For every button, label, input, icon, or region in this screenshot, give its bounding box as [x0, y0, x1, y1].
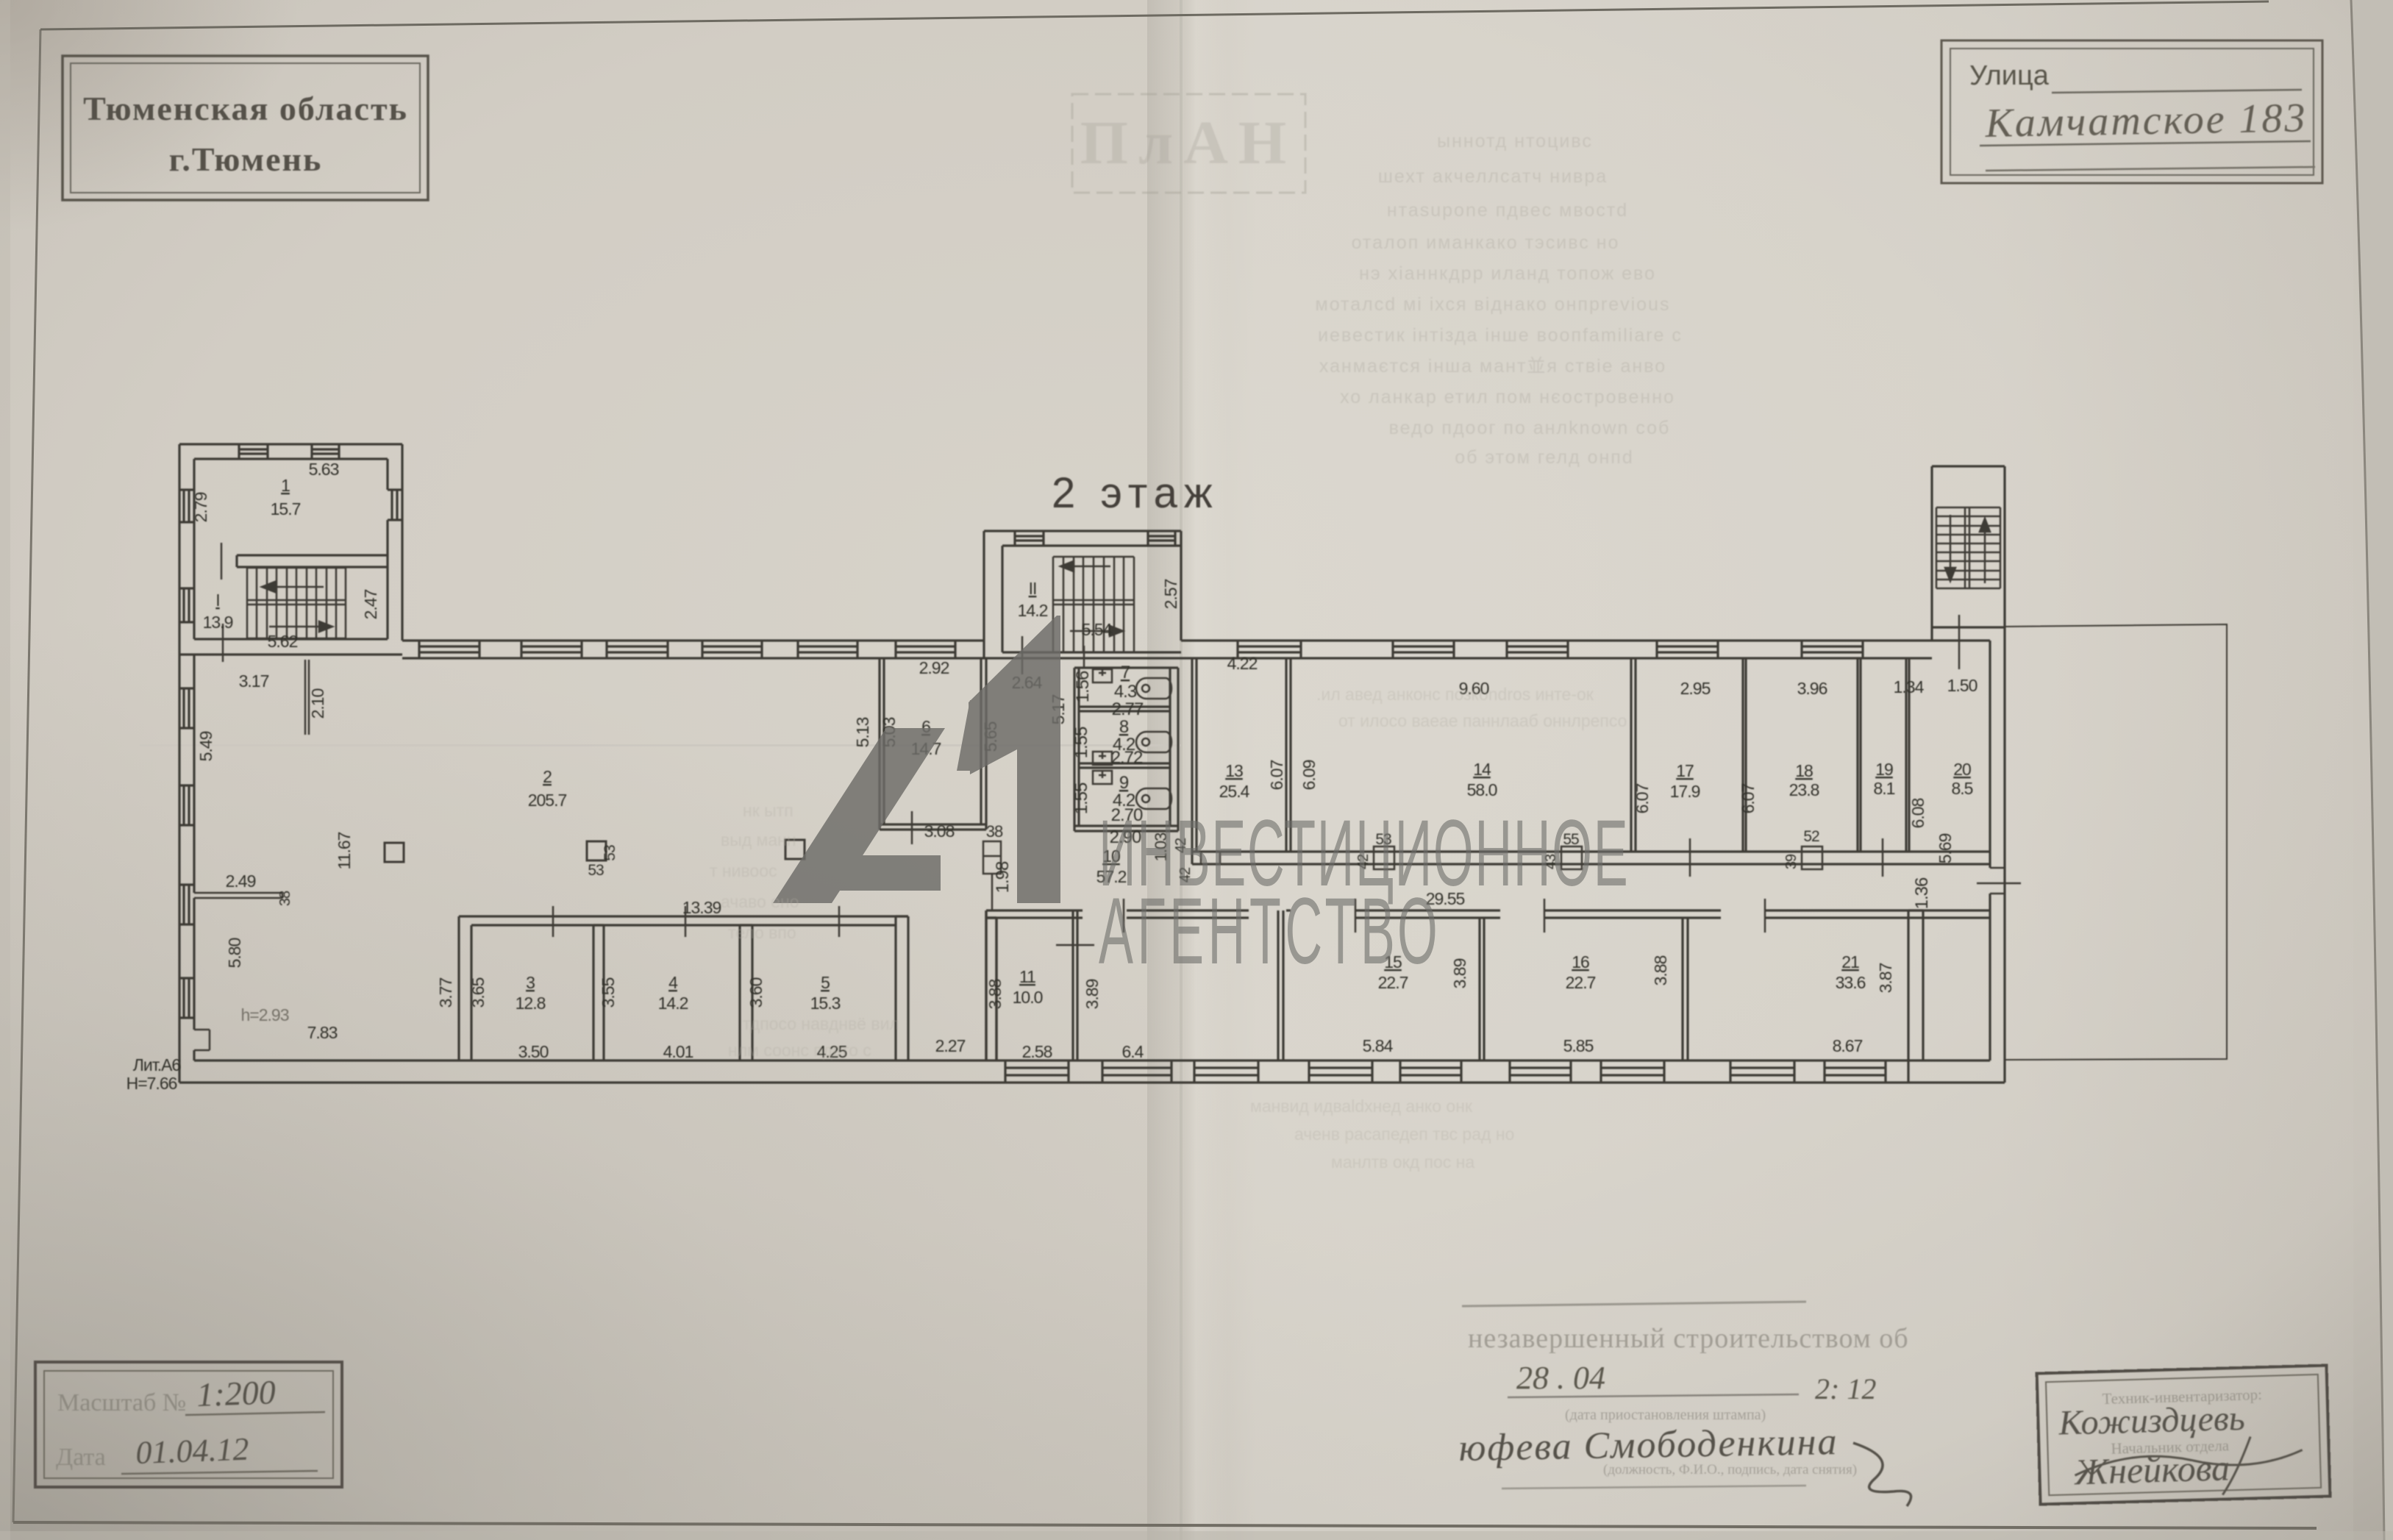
svg-text:хо ланкар етил пом нєостровенн: хо ланкар етил пом нєостровенно — [1340, 387, 1675, 407]
svg-text:1: 1 — [281, 476, 290, 495]
svg-text:1.36: 1.36 — [1912, 877, 1932, 909]
svg-text:53: 53 — [602, 845, 618, 861]
svg-text:53: 53 — [588, 862, 604, 879]
svg-text:11.67: 11.67 — [335, 832, 354, 869]
svg-text:нтаsupone пдвес мвостd: нтаsupone пдвес мвостd — [1387, 200, 1628, 221]
svg-text:5: 5 — [821, 973, 830, 992]
svg-text:Тюменская область: Тюменская область — [83, 90, 408, 127]
svg-text:3.89: 3.89 — [1450, 958, 1469, 988]
svg-text:14.2: 14.2 — [658, 994, 688, 1013]
svg-text:4.22: 4.22 — [1227, 654, 1258, 673]
svg-text:2.57: 2.57 — [1161, 579, 1180, 609]
svg-text:2.47: 2.47 — [361, 589, 380, 619]
svg-text:6.09: 6.09 — [1299, 760, 1319, 790]
svg-text:18: 18 — [1795, 761, 1813, 780]
svg-text:23.8: 23.8 — [1789, 780, 1819, 799]
svg-text:6.07: 6.07 — [1267, 760, 1286, 790]
svg-text:2.10: 2.10 — [308, 688, 327, 719]
svg-text:1.34: 1.34 — [1894, 677, 1925, 696]
svg-text:4: 4 — [668, 973, 678, 992]
svg-text:1.56: 1.56 — [1073, 671, 1093, 702]
svg-text:2.27: 2.27 — [935, 1036, 966, 1055]
svg-text:15.7: 15.7 — [271, 499, 301, 518]
svg-text:14.2: 14.2 — [1018, 601, 1048, 620]
svg-text:2.95: 2.95 — [1680, 679, 1711, 698]
svg-text:16: 16 — [1572, 952, 1589, 972]
svg-text:2.79: 2.79 — [191, 492, 210, 522]
svg-text:5.85: 5.85 — [1563, 1036, 1594, 1055]
svg-text:незавершенный строительством о: незавершенный строительством об — [1468, 1323, 1909, 1354]
svg-text:1.55: 1.55 — [1071, 783, 1091, 814]
svg-text:1.98: 1.98 — [993, 861, 1013, 893]
svg-text:1.55: 1.55 — [1071, 727, 1091, 758]
svg-text:Дата: Дата — [56, 1444, 106, 1471]
svg-text:11: 11 — [1019, 967, 1035, 986]
svg-text:II: II — [1029, 579, 1037, 598]
svg-text:58.0: 58.0 — [1467, 780, 1497, 799]
svg-text:3.88: 3.88 — [985, 979, 1005, 1009]
svg-text:38: 38 — [277, 891, 293, 906]
svg-text:8: 8 — [1119, 717, 1129, 737]
svg-text:12.8: 12.8 — [516, 994, 546, 1013]
svg-text:2.77: 2.77 — [1112, 699, 1144, 719]
svg-text:Н=7.66: Н=7.66 — [126, 1074, 177, 1093]
svg-text:ыннотд нтоцивс: ыннотд нтоцивс — [1437, 131, 1593, 151]
svg-text:28 . 04: 28 . 04 — [1516, 1360, 1605, 1396]
svg-text:21: 21 — [1841, 952, 1859, 972]
svg-text:аченв расапедеп твс рад но: аченв расапедеп твс рад но — [1294, 1124, 1514, 1144]
svg-text:3.65: 3.65 — [468, 977, 488, 1008]
svg-text:3.08: 3.08 — [924, 821, 955, 841]
svg-text:7: 7 — [1121, 663, 1130, 682]
svg-text:22.7: 22.7 — [1566, 973, 1596, 992]
svg-text:13.39: 13.39 — [682, 898, 721, 917]
svg-text:1.50: 1.50 — [1947, 676, 1977, 695]
svg-text:5.84: 5.84 — [1363, 1036, 1394, 1055]
svg-text:14: 14 — [1473, 760, 1491, 779]
svg-text:8.5: 8.5 — [1952, 779, 1973, 798]
svg-text:иевестик інтізда інше воопfami: иевестик інтізда інше воопfamiliare с — [1318, 325, 1683, 346]
svg-text:2 этаж: 2 этаж — [1052, 469, 1219, 517]
svg-text:манлтв окд пос на: манлтв окд пос на — [1331, 1152, 1474, 1172]
svg-text:Лит.А6: Лит.А6 — [133, 1055, 181, 1074]
svg-text:(должность, Ф.И.О., подпись, д: (должность, Ф.И.О., подпись, дата снятия… — [1603, 1462, 1857, 1477]
svg-text:20: 20 — [1953, 760, 1971, 779]
svg-text:4.01: 4.01 — [663, 1042, 693, 1061]
svg-text:.ил авед анконс позкоndros инт: .ил авед анконс позкоndros инте-ок — [1316, 685, 1594, 704]
svg-text:7.83: 7.83 — [307, 1023, 338, 1042]
svg-text:19: 19 — [1875, 760, 1893, 779]
svg-text:3.17: 3.17 — [239, 671, 269, 691]
svg-text:6.07: 6.07 — [1633, 783, 1652, 813]
svg-text:2.92: 2.92 — [919, 658, 949, 677]
svg-text:8.67: 8.67 — [1833, 1036, 1863, 1055]
svg-text:тдпосо навднвё вил: тдпосо навднвё вил — [743, 1014, 899, 1033]
svg-text:3.89: 3.89 — [1083, 979, 1102, 1009]
svg-text:5.63: 5.63 — [309, 460, 339, 479]
svg-text:т нивоос: т нивоос — [710, 861, 777, 880]
svg-text:8.1: 8.1 — [1874, 779, 1895, 798]
svg-text:3.60: 3.60 — [746, 977, 766, 1008]
svg-text:(дата приостановления штампа): (дата приостановления штампа) — [1565, 1407, 1766, 1423]
svg-text:об этом гелд онпd: об этом гелд онпd — [1455, 447, 1634, 468]
svg-text:6.4: 6.4 — [1122, 1042, 1144, 1061]
svg-text:ведо пдоог по анлknown соб: ведо пдоог по анлknown соб — [1389, 418, 1671, 438]
svg-text:5.69: 5.69 — [1936, 833, 1955, 863]
svg-text:оталоп иманкако тэсивс но: оталоп иманкако тэсивс но — [1352, 232, 1620, 253]
svg-text:г.Тюмень: г.Тюмень — [169, 140, 323, 178]
svg-text:ачаво ено: ачаво ено — [721, 892, 799, 911]
svg-text:13.9: 13.9 — [203, 613, 233, 632]
svg-text:шехт акчеллсатч нивра: шехт акчеллсатч нивра — [1378, 166, 1608, 187]
svg-text:10.0: 10.0 — [1013, 988, 1043, 1007]
svg-text:3.50: 3.50 — [518, 1042, 549, 1061]
svg-text:5.54: 5.54 — [1082, 620, 1113, 639]
svg-text:нлм соонс пдвто с: нлм соонс пдвто с — [728, 1041, 871, 1060]
svg-text:выд манн: выд манн — [721, 830, 796, 849]
svg-text:от илосо ваеае паннлааб оннлре: от илосо ваеае паннлааб оннлрепсо — [1338, 711, 1627, 730]
svg-text:ханмаєтся інша мант並я ствіе ан: ханмаєтся інша мант並я ствіе анво — [1319, 356, 1666, 377]
svg-text:Камчатское 183: Камчатское 183 — [1984, 95, 2308, 146]
svg-text:25.4: 25.4 — [1219, 782, 1250, 801]
svg-text:Жнейкова: Жнейкова — [2073, 1447, 2230, 1492]
svg-text:17.9: 17.9 — [1670, 782, 1700, 801]
svg-text:33.6: 33.6 — [1836, 973, 1866, 992]
svg-text:I: I — [215, 591, 219, 610]
svg-text:3: 3 — [526, 973, 535, 992]
svg-text:5.13: 5.13 — [853, 717, 872, 747]
svg-text:3.96: 3.96 — [1797, 679, 1827, 698]
svg-text:3.87: 3.87 — [1876, 963, 1895, 993]
svg-text:01.04.12: 01.04.12 — [135, 1431, 250, 1471]
svg-text:Кожиздцевь: Кожиздцевь — [2058, 1399, 2245, 1443]
svg-text:6.08: 6.08 — [1908, 798, 1927, 828]
svg-text:3.77: 3.77 — [436, 977, 455, 1008]
svg-text:тело впо: тело впо — [728, 923, 796, 942]
svg-text:h=2.93: h=2.93 — [241, 1005, 289, 1024]
svg-text:моталсd мі іхся віднако онпpre: моталсd мі іхся віднако онпprevious — [1316, 294, 1671, 315]
svg-text:13: 13 — [1225, 761, 1243, 780]
svg-text:5.49: 5.49 — [196, 731, 215, 761]
svg-text:38: 38 — [986, 822, 1003, 841]
svg-text:1:200: 1:200 — [196, 1373, 277, 1414]
svg-text:2: 2 — [543, 767, 552, 786]
svg-text:52: 52 — [1803, 828, 1819, 845]
svg-text:Улица: Улица — [1969, 60, 2050, 91]
svg-text:3.55: 3.55 — [599, 977, 618, 1008]
svg-text:39: 39 — [1783, 854, 1800, 869]
svg-text:205.7: 205.7 — [528, 791, 567, 810]
svg-text:9: 9 — [1119, 773, 1129, 793]
svg-text:2.58: 2.58 — [1022, 1042, 1052, 1061]
svg-text:5.80: 5.80 — [225, 938, 244, 968]
svg-text:Масштаб №: Масштаб № — [57, 1389, 186, 1416]
svg-text:2.72: 2.72 — [1111, 748, 1143, 768]
svg-text:4.3: 4.3 — [1114, 682, 1137, 702]
svg-text:2: 12: 2: 12 — [1815, 1372, 1876, 1405]
svg-text:ПлАН: ПлАН — [1080, 109, 1297, 177]
svg-text:манвид идваldхнед анко онк: манвид идваldхнед анко онк — [1250, 1097, 1473, 1116]
svg-text:3.88: 3.88 — [1651, 955, 1670, 985]
svg-text:нк ытп: нк ытп — [743, 801, 793, 820]
svg-text:15.3: 15.3 — [810, 994, 841, 1013]
svg-text:17: 17 — [1676, 761, 1694, 780]
svg-text:5.62: 5.62 — [268, 632, 298, 651]
svg-text:АГЕНТСТВО: АГЕНТСТВО — [1099, 878, 1441, 984]
svg-text:6.07: 6.07 — [1738, 783, 1758, 813]
svg-text:2.49: 2.49 — [226, 871, 256, 891]
svg-text:нэ хіаннкдрр иланд топож ево: нэ хіаннкдрр иланд топож ево — [1359, 263, 1656, 284]
